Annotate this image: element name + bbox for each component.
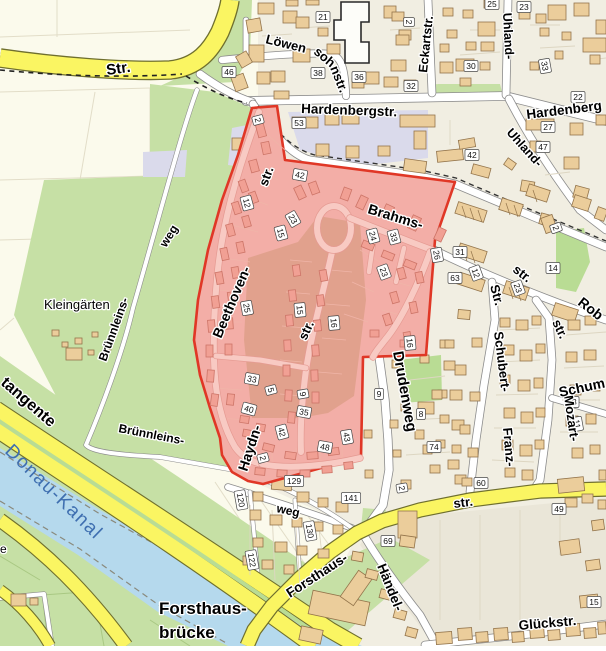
svg-text:43: 43 bbox=[341, 431, 353, 442]
svg-text:141: 141 bbox=[344, 493, 358, 503]
svg-text:21: 21 bbox=[318, 12, 328, 22]
svg-text:16: 16 bbox=[329, 318, 340, 329]
svg-text:15: 15 bbox=[295, 305, 306, 316]
svg-text:48: 48 bbox=[319, 441, 330, 453]
svg-text:Uhland-: Uhland- bbox=[500, 12, 516, 59]
svg-text:60: 60 bbox=[476, 478, 486, 488]
svg-text:2: 2 bbox=[404, 20, 414, 25]
svg-text:35: 35 bbox=[298, 406, 309, 418]
svg-text:30: 30 bbox=[466, 61, 476, 71]
svg-text:46: 46 bbox=[224, 67, 234, 77]
svg-text:31: 31 bbox=[455, 247, 465, 257]
svg-text:Kleingärten: Kleingärten bbox=[44, 297, 110, 312]
svg-text:38: 38 bbox=[313, 68, 323, 78]
svg-text:Str.: Str. bbox=[105, 59, 131, 79]
svg-text:47: 47 bbox=[538, 142, 548, 152]
svg-text:9: 9 bbox=[377, 389, 382, 399]
svg-text:36: 36 bbox=[354, 72, 364, 82]
svg-text:129: 129 bbox=[287, 476, 301, 486]
svg-text:brücke: brücke bbox=[159, 623, 215, 642]
svg-text:49: 49 bbox=[554, 504, 564, 514]
svg-text:14: 14 bbox=[548, 263, 558, 273]
svg-text:str.: str. bbox=[453, 494, 474, 511]
svg-text:42: 42 bbox=[294, 169, 305, 181]
svg-text:33: 33 bbox=[246, 373, 257, 385]
svg-text:69: 69 bbox=[383, 536, 393, 546]
svg-text:25: 25 bbox=[487, 0, 497, 9]
svg-text:23: 23 bbox=[519, 2, 529, 12]
svg-text:63: 63 bbox=[450, 273, 460, 283]
svg-text:Forsthaus-: Forsthaus- bbox=[159, 599, 247, 618]
svg-text:e: e bbox=[0, 542, 7, 556]
svg-text:33: 33 bbox=[539, 60, 551, 71]
svg-text:32: 32 bbox=[406, 81, 416, 91]
svg-text:16: 16 bbox=[405, 338, 416, 349]
svg-text:53: 53 bbox=[294, 118, 304, 128]
svg-text:25: 25 bbox=[241, 302, 253, 313]
svg-text:42: 42 bbox=[467, 150, 477, 160]
svg-text:15: 15 bbox=[589, 597, 599, 607]
svg-text:8: 8 bbox=[419, 409, 424, 419]
svg-text:27: 27 bbox=[543, 122, 553, 132]
svg-text:74: 74 bbox=[429, 442, 439, 452]
svg-text:26: 26 bbox=[431, 249, 443, 260]
